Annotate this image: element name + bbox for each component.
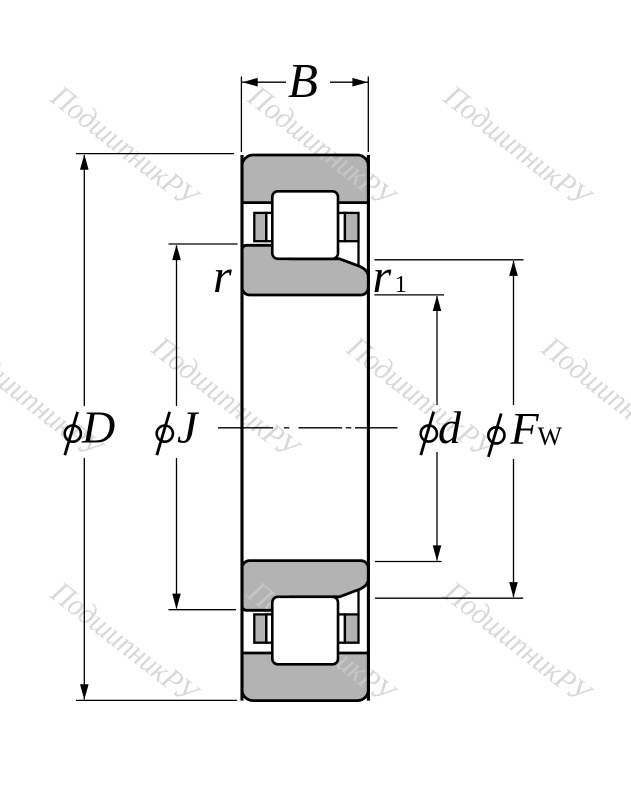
svg-text:r: r — [213, 250, 232, 303]
svg-text:r: r — [373, 250, 392, 303]
svg-text:F: F — [510, 403, 540, 454]
svg-text:J: J — [177, 402, 200, 453]
svg-text:1: 1 — [395, 272, 407, 298]
svg-text:d: d — [438, 402, 462, 453]
svg-text:B: B — [288, 53, 318, 108]
svg-text:D: D — [81, 402, 115, 453]
svg-text:W: W — [538, 422, 563, 451]
